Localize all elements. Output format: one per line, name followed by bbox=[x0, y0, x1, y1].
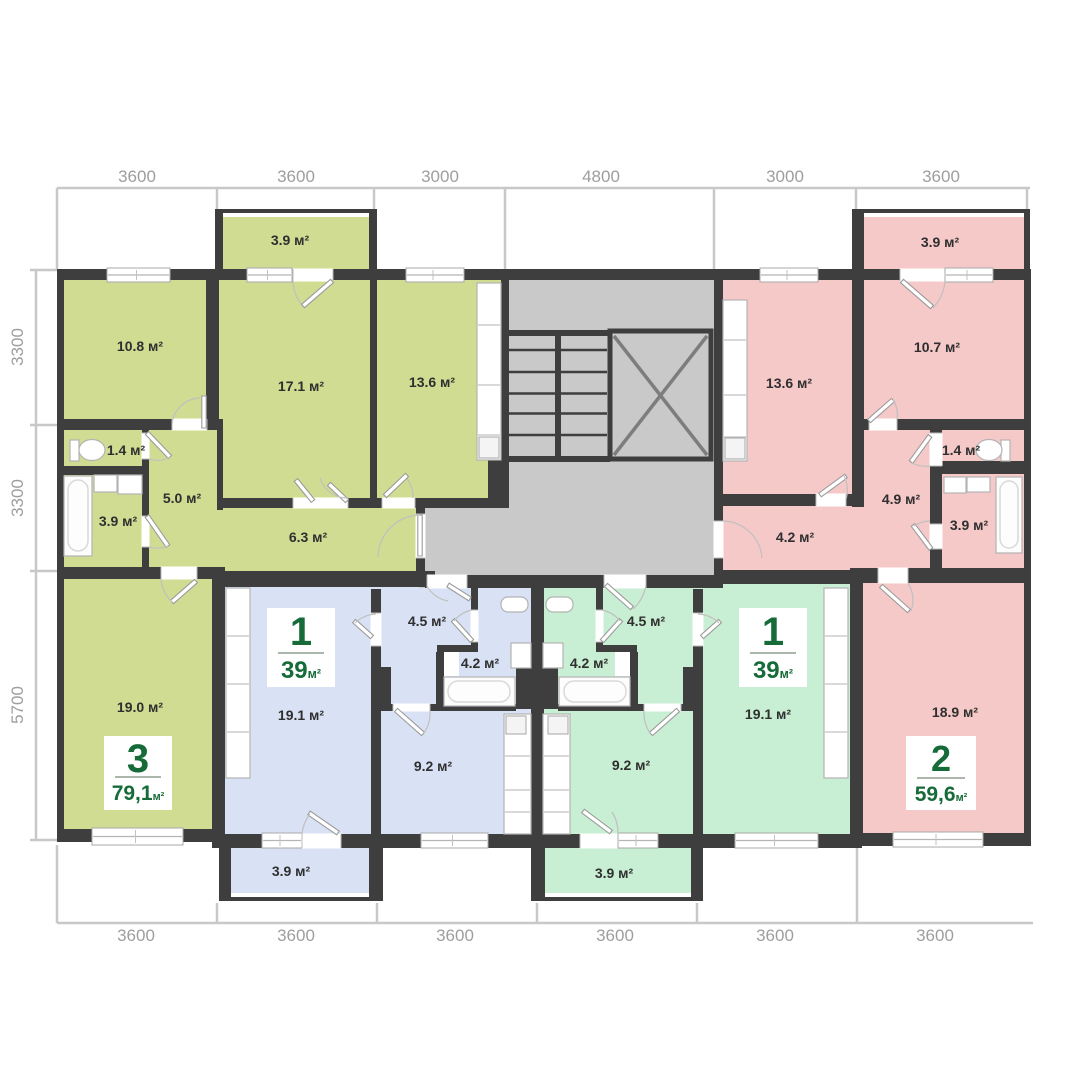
svg-text:4.9 м²: 4.9 м² bbox=[882, 491, 921, 507]
svg-text:2: 2 bbox=[931, 738, 951, 779]
svg-text:3300: 3300 bbox=[8, 479, 27, 517]
svg-text:3600: 3600 bbox=[922, 167, 960, 186]
svg-text:4.5 м²: 4.5 м² bbox=[627, 613, 666, 629]
svg-text:17.1 м²: 17.1 м² bbox=[278, 378, 324, 394]
svg-text:19.1 м²: 19.1 м² bbox=[278, 707, 324, 723]
svg-text:4.2 м²: 4.2 м² bbox=[570, 655, 609, 671]
svg-text:4.2 м²: 4.2 м² bbox=[776, 529, 815, 545]
svg-text:4.5 м²: 4.5 м² bbox=[408, 613, 447, 629]
svg-text:13.6 м²: 13.6 м² bbox=[409, 374, 455, 390]
svg-text:3000: 3000 bbox=[766, 167, 804, 186]
svg-text:3.9 м²: 3.9 м² bbox=[272, 863, 311, 879]
svg-text:1: 1 bbox=[762, 610, 784, 654]
svg-text:3000: 3000 bbox=[421, 167, 459, 186]
svg-text:13.6 м²: 13.6 м² bbox=[766, 375, 812, 391]
svg-text:3.9 м²: 3.9 м² bbox=[595, 865, 634, 881]
svg-text:3600: 3600 bbox=[117, 926, 155, 945]
svg-text:5700: 5700 bbox=[8, 686, 27, 724]
svg-text:5.0 м²: 5.0 м² bbox=[163, 490, 202, 506]
svg-text:1: 1 bbox=[290, 610, 312, 654]
svg-text:3600: 3600 bbox=[277, 167, 315, 186]
svg-text:3.9 м²: 3.9 м² bbox=[950, 517, 989, 533]
svg-text:4.2 м²: 4.2 м² bbox=[461, 655, 500, 671]
svg-text:4800: 4800 bbox=[582, 167, 620, 186]
svg-text:10.8 м²: 10.8 м² bbox=[117, 338, 163, 354]
svg-text:18.9 м²: 18.9 м² bbox=[932, 704, 978, 720]
svg-text:3600: 3600 bbox=[277, 926, 315, 945]
svg-text:3300: 3300 bbox=[8, 328, 27, 366]
svg-text:3600: 3600 bbox=[596, 926, 634, 945]
svg-text:19.0 м²: 19.0 м² bbox=[117, 699, 163, 715]
svg-text:10.7 м²: 10.7 м² bbox=[914, 339, 960, 355]
svg-text:6.3 м²: 6.3 м² bbox=[289, 529, 328, 545]
svg-text:9.2 м²: 9.2 м² bbox=[414, 758, 453, 774]
svg-text:3.9 м²: 3.9 м² bbox=[99, 513, 138, 529]
svg-text:3600: 3600 bbox=[436, 926, 474, 945]
svg-text:3600: 3600 bbox=[756, 926, 794, 945]
svg-text:1.4 м²: 1.4 м² bbox=[942, 442, 981, 458]
svg-text:3.9 м²: 3.9 м² bbox=[921, 234, 960, 250]
svg-text:3600: 3600 bbox=[916, 926, 954, 945]
svg-text:3.9 м²: 3.9 м² bbox=[271, 232, 310, 248]
svg-text:3600: 3600 bbox=[118, 167, 156, 186]
svg-text:19.1 м²: 19.1 м² bbox=[745, 706, 791, 722]
svg-text:9.2 м²: 9.2 м² bbox=[612, 757, 651, 773]
svg-text:1.4 м²: 1.4 м² bbox=[107, 442, 146, 458]
svg-text:3: 3 bbox=[127, 737, 149, 781]
